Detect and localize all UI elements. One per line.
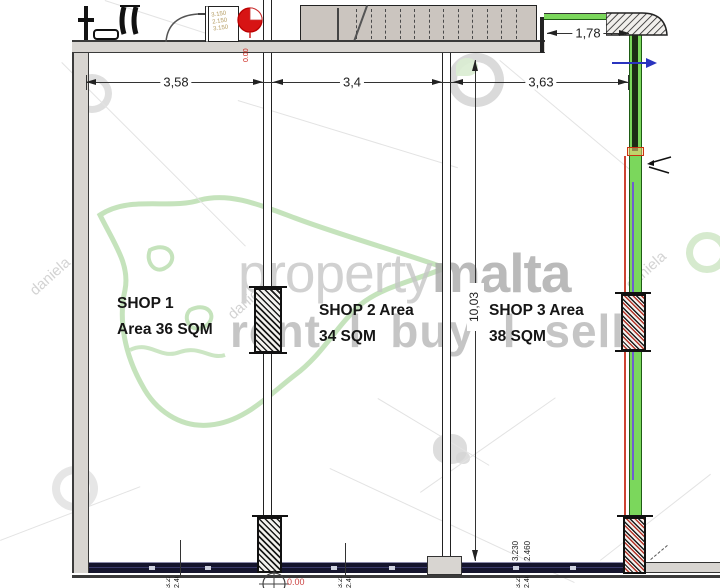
watermark-brand-bold: malta <box>432 242 571 304</box>
radiator-bar <box>122 7 124 34</box>
mullion-tick <box>389 566 395 570</box>
logo-swirl-green <box>686 232 720 273</box>
door-swing-arc <box>166 14 198 42</box>
dim-shop1-width: 3,58 <box>160 75 191 90</box>
pier-shop2-shop3 <box>427 556 462 575</box>
column-cap <box>615 292 651 294</box>
marker-leader-arrows <box>645 154 673 176</box>
shop3-label: SHOP 3 Area 38 SQM <box>489 298 584 350</box>
shop1-label: SHOP 1 Area 36 SQM <box>117 291 213 343</box>
bottom-right-wall <box>646 562 720 573</box>
radiator-bar <box>134 7 136 34</box>
shop2-area: 34 SQM <box>319 324 414 350</box>
mullion-tick <box>205 566 211 570</box>
staircase <box>300 5 537 43</box>
storefront-glazing-band <box>89 562 625 573</box>
dim-right-recess: 1,78 <box>572 26 603 41</box>
shop1-name: SHOP 1 <box>117 291 213 317</box>
riser-closet: 3.150 2.150 3.150 <box>205 6 239 42</box>
watermark-brand: propertymalta <box>238 241 570 305</box>
mullion-tick <box>570 566 576 570</box>
right-wall-dark-segment <box>632 17 638 151</box>
floor-plan: propertymalta rent l buy l sell daniela … <box>0 0 720 588</box>
clipped-dim-stack: 3.2302.460 <box>516 577 531 588</box>
level-text-front: 0.00 <box>287 577 305 587</box>
opening-marker-line <box>180 540 181 576</box>
clipped-dim-stack: 3.2302.460 <box>166 577 181 588</box>
front-height-b: 2.460 <box>523 527 533 561</box>
shop2-name: SHOP 2 Area <box>319 298 414 324</box>
right-opening-marker <box>627 147 644 156</box>
construction-line <box>499 60 638 176</box>
top-glazing-strip <box>544 13 608 20</box>
entrance-arrow-blue <box>612 56 658 70</box>
dim-shop3-width: 3,63 <box>525 75 556 90</box>
fixture-bracket <box>78 18 94 22</box>
top-wall-step <box>540 17 544 53</box>
dim-shop-depth: 10,03 <box>467 283 484 331</box>
construction-line <box>600 474 711 561</box>
left-wall <box>72 40 89 573</box>
column-front-left <box>257 517 282 573</box>
column-cap <box>249 352 287 354</box>
shop1-area: Area 36 SQM <box>117 317 213 343</box>
extension-tick <box>628 75 629 90</box>
column-right-mid <box>621 294 646 351</box>
level-text-back: 0.00 <box>243 36 254 62</box>
shop2-label: SHOP 2 Area 34 SQM <box>319 298 414 350</box>
dim-shop2-width: 3,4 <box>340 75 364 90</box>
column-shop1-shop2 <box>254 288 282 353</box>
column-cap <box>617 515 653 517</box>
clipped-dim-stack: 3.2302.460 <box>338 577 353 588</box>
mullion-tick <box>513 566 519 570</box>
stair-treads <box>356 9 517 39</box>
column-cap <box>615 350 651 352</box>
shop3-name: SHOP 3 Area <box>489 298 584 324</box>
mullion-tick <box>149 566 155 570</box>
column-cap <box>252 515 288 517</box>
right-red-line <box>624 156 626 566</box>
column-cap <box>249 286 287 288</box>
mullion-tick <box>331 566 337 570</box>
stair-landing-line <box>337 8 339 40</box>
column-front-right <box>623 517 646 574</box>
opening-marker-line <box>345 543 346 576</box>
shop3-area: 38 SQM <box>489 324 584 350</box>
front-height-a: 3.230 <box>511 527 521 561</box>
wall-shop2-shop3 <box>442 53 451 556</box>
bathroom-fixtures <box>76 2 218 44</box>
level-marker-top <box>236 6 266 38</box>
level-marker-front <box>257 569 291 588</box>
sink-fixture <box>94 30 118 39</box>
